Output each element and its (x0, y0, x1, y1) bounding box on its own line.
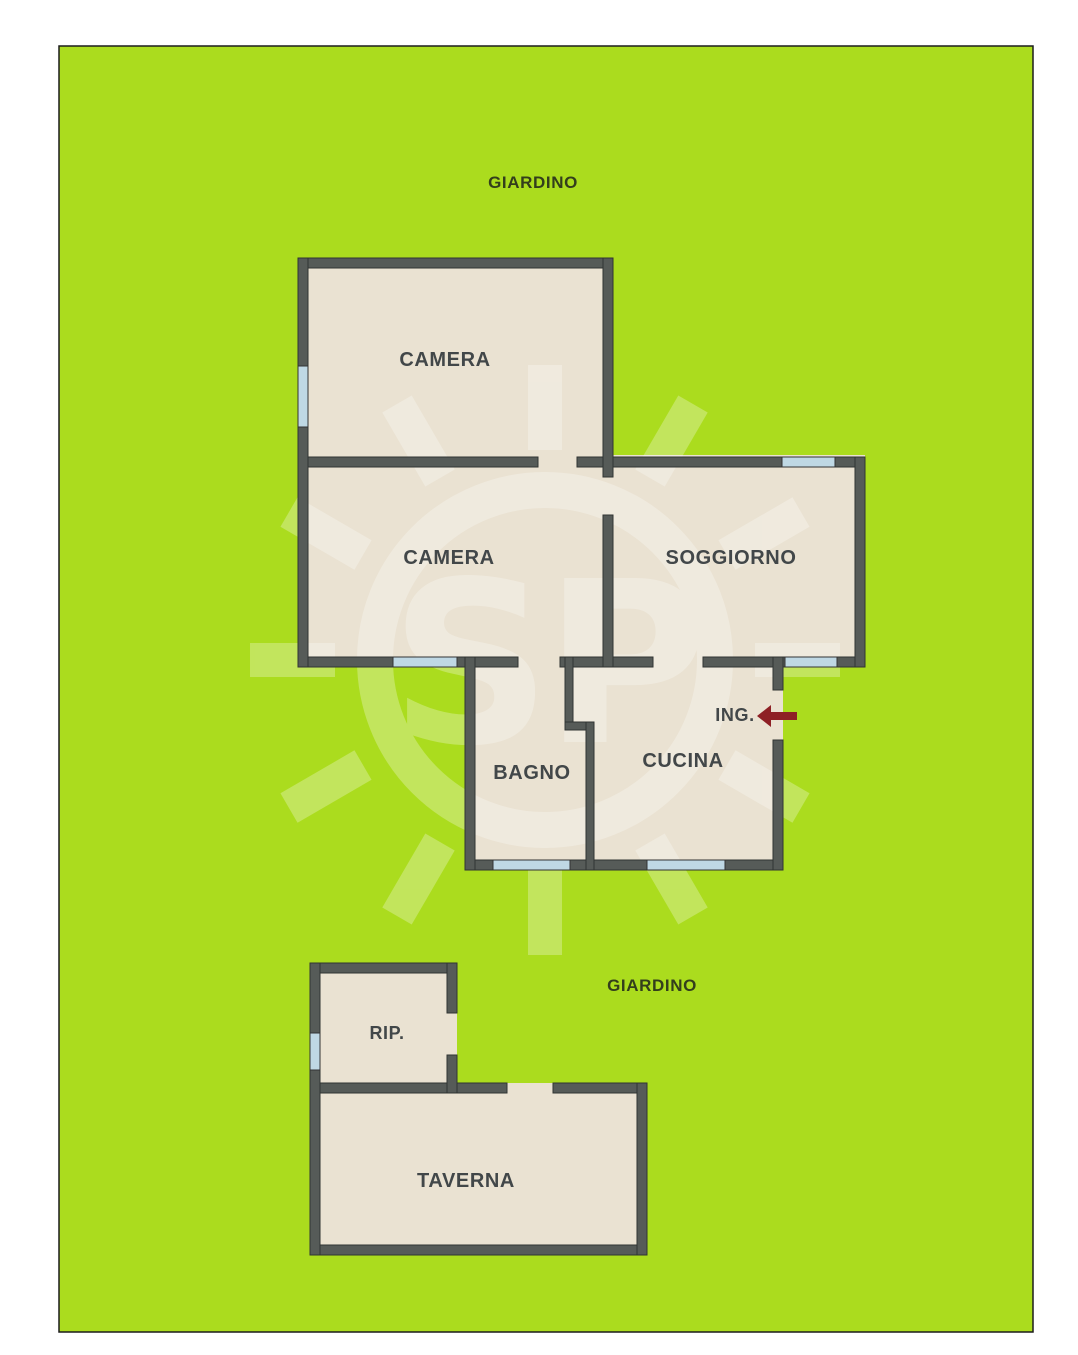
wall-segment (603, 515, 613, 667)
window-cucina (647, 860, 725, 870)
wall-segment (447, 963, 457, 1013)
label-taverna: TAVERNA (417, 1170, 515, 1192)
label-ingresso: ING. (715, 705, 754, 725)
wall-segment (310, 1245, 647, 1255)
label-rip: RIP. (369, 1023, 404, 1043)
wall-segment (855, 457, 865, 667)
wall-segment (773, 657, 783, 690)
wall-segment (570, 860, 647, 870)
wall-segment (586, 722, 594, 870)
wall-segment (310, 963, 457, 973)
wall-segment (603, 258, 613, 477)
wall-segment (298, 427, 308, 667)
wall-segment (298, 258, 613, 268)
wall-segment (447, 1055, 457, 1093)
label-camera-top: CAMERA (399, 349, 490, 371)
window-soggiorno-bottom (785, 657, 837, 667)
floor-plan-page: SP (0, 0, 1078, 1355)
wall-segment (310, 963, 320, 1033)
wall-segment (298, 457, 538, 467)
wall-segment (298, 657, 393, 667)
window-rip (310, 1033, 320, 1070)
floor-taverna (310, 1083, 647, 1255)
wall-segment (637, 1083, 647, 1255)
wall-segment (298, 258, 308, 366)
wall-segment (310, 1070, 320, 1255)
window-bagno (493, 860, 570, 870)
label-bagno: BAGNO (493, 762, 570, 784)
wall-segment (773, 740, 783, 870)
wall-segment (565, 657, 573, 730)
label-soggiorno: SOGGIORNO (666, 547, 797, 569)
wall-segment (465, 657, 475, 870)
label-giardino-bottom: GIARDINO (607, 976, 697, 995)
label-cucina: CUCINA (642, 750, 723, 772)
wall-segment (553, 1083, 647, 1093)
window-soggiorno-top (782, 457, 835, 467)
window-camera-top (298, 366, 308, 427)
floor-plan-svg: SP (0, 0, 1078, 1355)
wall-segment (310, 1083, 507, 1093)
label-camera-mid: CAMERA (403, 547, 494, 569)
label-giardino-top: GIARDINO (488, 173, 578, 192)
window-camera-mid (393, 657, 457, 667)
